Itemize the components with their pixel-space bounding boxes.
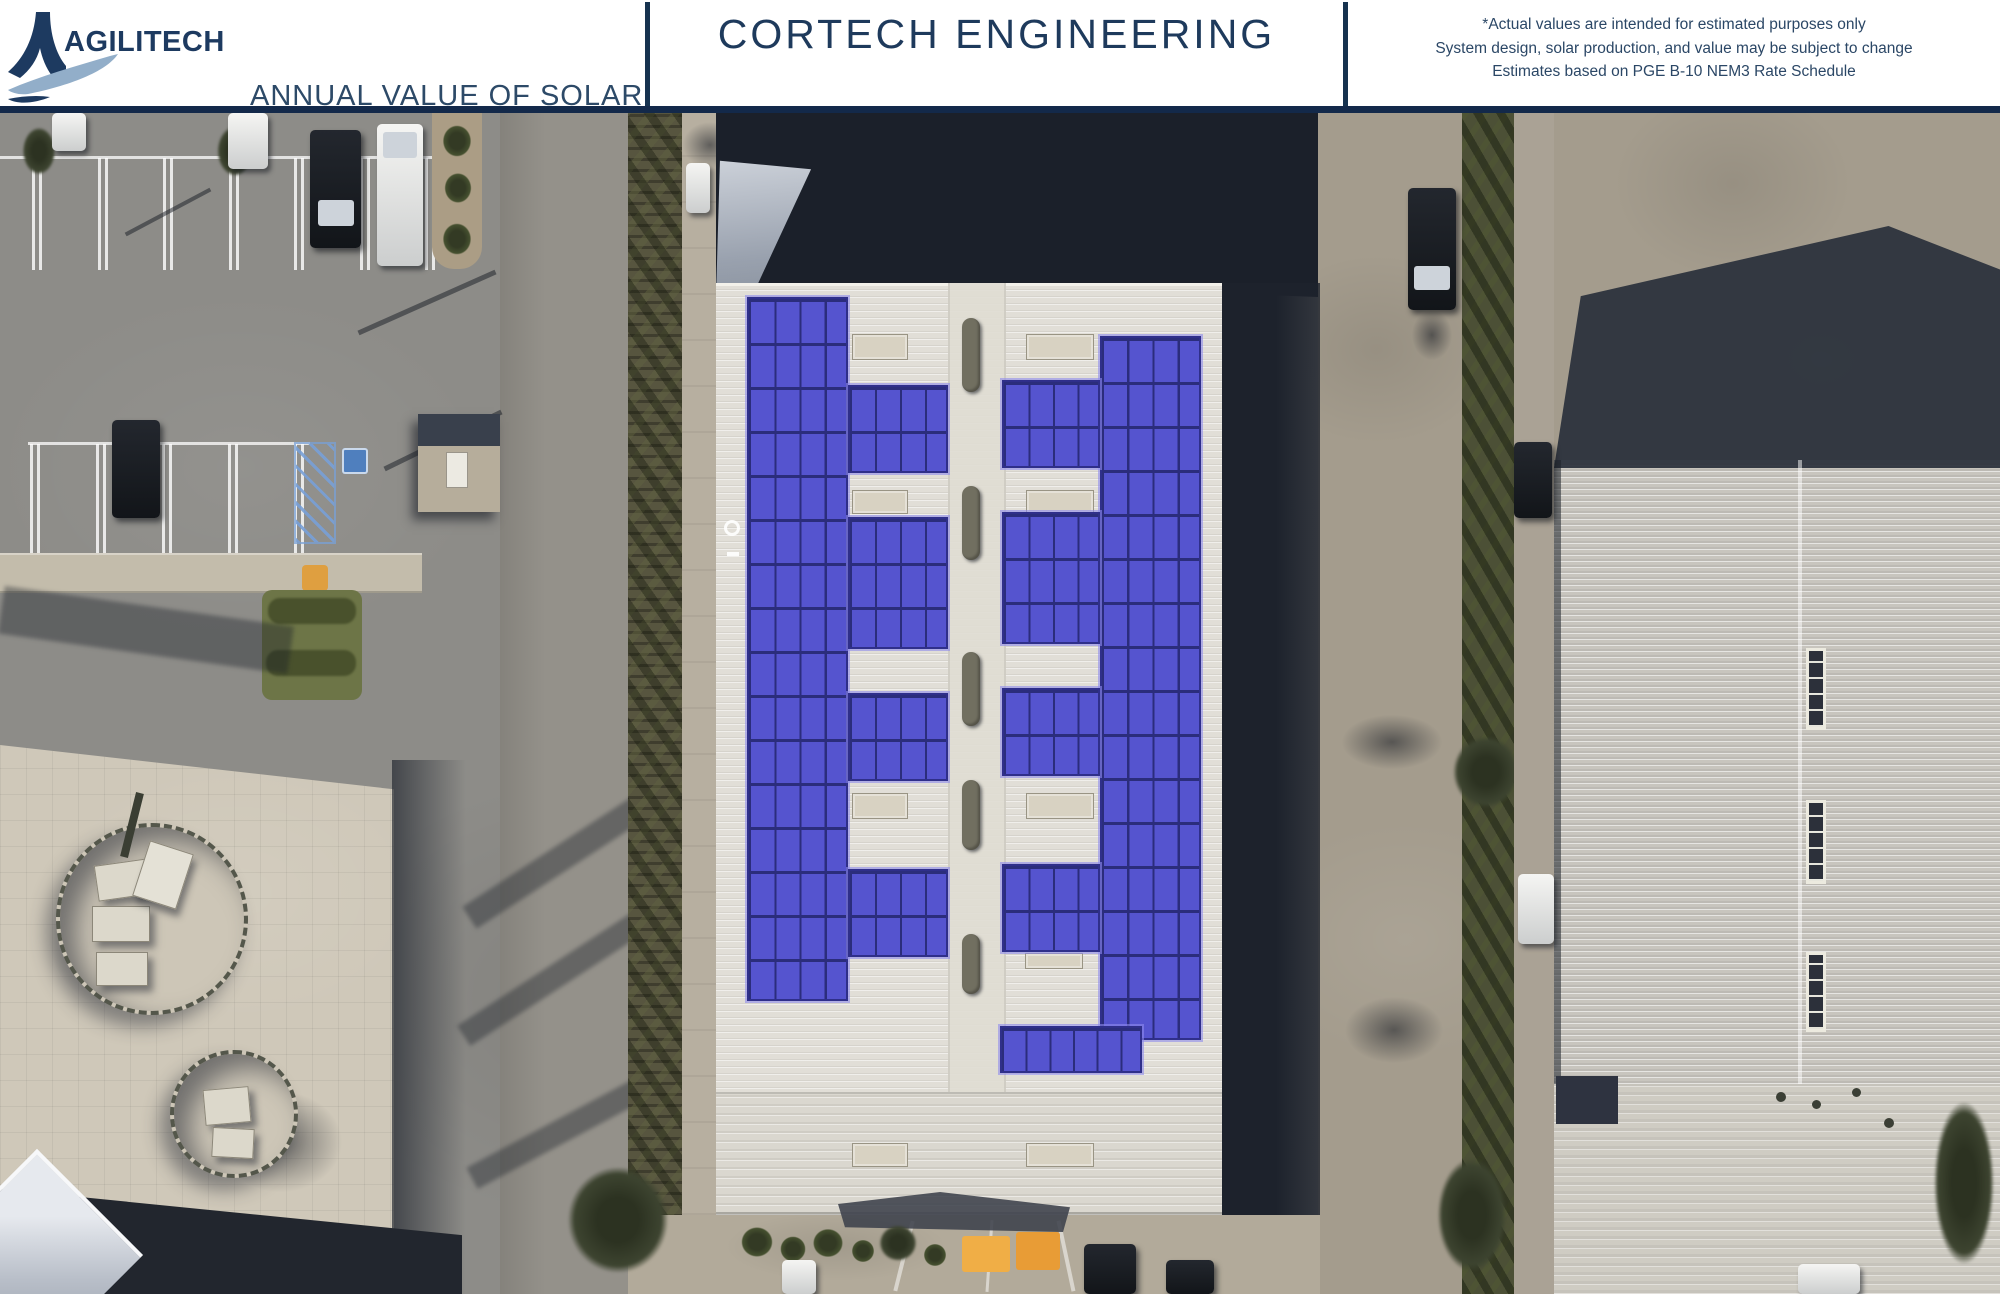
corner-trees-bottom-right	[1922, 1070, 2000, 1294]
skylight-slot-2	[1806, 800, 1826, 884]
roof-vent-dot-1	[1776, 1092, 1786, 1102]
car-top-4-glass	[383, 132, 417, 158]
solar-array-left-wing-4	[848, 869, 948, 957]
disclaimer-line2: System design, solar production, and val…	[1348, 37, 2000, 61]
building-shadow-right	[1222, 283, 1320, 1233]
stall-line	[96, 444, 99, 554]
sidewalk-marker	[302, 565, 328, 591]
disclaimer-line3: Estimates based on PGE B-10 NEM3 Rate Sc…	[1348, 60, 2000, 84]
stall-line	[169, 444, 172, 554]
solar-array-right-strip	[1100, 336, 1201, 1040]
skylight-slot-1	[1806, 648, 1826, 730]
car-top-3	[310, 130, 361, 248]
island-bush-2	[440, 168, 476, 208]
stall-line	[103, 444, 106, 554]
roof-skylight-r4	[1025, 953, 1083, 969]
roof-vent-5	[962, 934, 980, 994]
solar-array-left-wing-2	[848, 517, 948, 649]
hedge-trees-bottom	[1424, 1136, 1520, 1294]
agilitech-logo: AGILITECH	[0, 0, 250, 106]
car-southeast-white	[1798, 1264, 1860, 1294]
right-road-shade-2	[1326, 984, 1462, 1076]
dock-marker-2	[1016, 1232, 1060, 1270]
pad-small-equipment-2	[211, 1127, 255, 1159]
pad-equipment-3	[96, 952, 148, 986]
stall-line	[301, 158, 304, 270]
car-top-1	[52, 113, 86, 151]
solar-array-left-wing-1	[848, 385, 948, 473]
stall-line	[170, 158, 173, 270]
island-bush-3	[438, 218, 476, 260]
handicap-symbol	[342, 448, 368, 474]
stall-line	[228, 444, 231, 554]
header: AGILITECH ANNUAL VALUE OF SOLAR PRODUCTI…	[0, 0, 2000, 113]
palm-plant	[872, 1218, 924, 1268]
solar-array-right-wing-3	[1002, 688, 1100, 776]
southwest-building-shadow-right	[392, 760, 466, 1294]
car-right-road-dark	[1408, 188, 1456, 310]
header-right-section: *Actual values are intended for estimate…	[1348, 0, 2000, 106]
pad-small-equipment-1	[203, 1086, 252, 1126]
skylight-slot-3	[1806, 952, 1826, 1032]
dock-marker-1	[962, 1236, 1010, 1272]
stall-line	[162, 444, 165, 554]
disclaimer-line1: *Actual values are intended for estimate…	[1348, 13, 2000, 37]
roof-skylight-r1	[1026, 334, 1094, 360]
service-lane	[1514, 113, 1554, 1294]
trees-street-bottom	[548, 1146, 688, 1294]
company-title: CORTECH ENGINEERING	[650, 11, 1343, 58]
solar-array-left-strip	[747, 297, 848, 1001]
stall-line	[30, 444, 33, 554]
brand-wordmark: AGILITECH	[64, 26, 225, 59]
solar-array-left-wing-3	[848, 693, 948, 781]
right-building-roof	[1554, 460, 2000, 1084]
stall-line	[294, 158, 297, 270]
car-south-white	[782, 1260, 816, 1294]
aerial-photo	[0, 113, 2000, 1294]
car-lane-dark	[1514, 442, 1552, 518]
shrub-1	[736, 1222, 778, 1262]
hedge-strip	[1462, 113, 1514, 1294]
stall-line	[105, 158, 108, 270]
shelter-roof-shadow	[418, 414, 500, 446]
roof-skylight-l4	[852, 1143, 908, 1167]
solar-proposal-page: AGILITECH ANNUAL VALUE OF SOLAR PRODUCTI…	[0, 0, 2000, 1294]
car-walkway-white	[686, 163, 710, 213]
car-top-3-glass	[318, 200, 354, 226]
solar-array-right-wing-2	[1002, 512, 1100, 644]
walkway-marking-ring	[724, 520, 740, 536]
handicap-hatch	[296, 444, 334, 542]
stall-line	[235, 444, 238, 554]
roof-vent-dot-3	[1852, 1088, 1861, 1097]
walkway-west	[682, 113, 718, 1215]
roof-vent-3	[962, 652, 980, 726]
solar-array-right-wing-1	[1002, 380, 1100, 468]
truck-lane-white	[1518, 874, 1554, 944]
right-building-ridge	[1798, 460, 1802, 1084]
solar-array-right-wing-4	[1002, 864, 1100, 952]
stall-line	[425, 158, 428, 270]
roof-vent-1	[962, 318, 980, 392]
right-building-edge	[1554, 460, 1561, 1084]
roof-vent-2	[962, 486, 980, 560]
sidewalk	[0, 553, 422, 593]
roof-vent-dot-2	[1812, 1100, 1821, 1109]
roof-skylight-l1	[852, 334, 908, 360]
stall-line	[37, 444, 40, 554]
car-south-dark-2	[1166, 1260, 1214, 1294]
annual-value-text: ANNUAL VALUE OF SOLAR PRODUCTION: $44,33…	[250, 13, 643, 106]
roof-vent-4	[962, 780, 980, 850]
vegetation-strip	[628, 113, 682, 1294]
walkway-marking-dash	[727, 552, 739, 556]
roof-notch-dark	[1556, 1076, 1618, 1124]
car-mid-dark	[112, 420, 160, 518]
header-left-section: AGILITECH ANNUAL VALUE OF SOLAR PRODUCTI…	[0, 0, 645, 106]
roof-vent-dot-4	[1884, 1118, 1894, 1128]
parking-stalls-mid	[30, 444, 330, 554]
solar-array-right-tail	[1000, 1026, 1142, 1073]
stall-line	[98, 158, 101, 270]
car-south-dark-1	[1084, 1244, 1136, 1294]
annual-value-line1: ANNUAL VALUE OF SOLAR	[250, 80, 643, 114]
roof-skylight-l3	[852, 793, 908, 819]
building-shadow-top	[716, 113, 1318, 297]
header-center-section: CORTECH ENGINEERING	[650, 0, 1343, 106]
island-bush-1	[438, 120, 476, 162]
car-top-2	[228, 113, 268, 169]
shrub-5	[920, 1240, 950, 1270]
car-right-road-glass	[1414, 266, 1450, 290]
car-right-road-shadow	[1404, 300, 1460, 370]
roof-skylight-l2	[852, 490, 908, 514]
shrub-3	[808, 1224, 848, 1262]
roof-skylight-r2	[1026, 490, 1094, 514]
roof-skylight-r5	[1026, 1143, 1094, 1167]
shelter-interior	[446, 452, 468, 488]
stall-line	[367, 158, 370, 270]
lawn-bushrow-1	[268, 598, 356, 624]
roof-skylight-r3	[1026, 793, 1094, 819]
roof-center-walkband	[948, 283, 1006, 1215]
pad-equipment-2	[92, 906, 150, 942]
